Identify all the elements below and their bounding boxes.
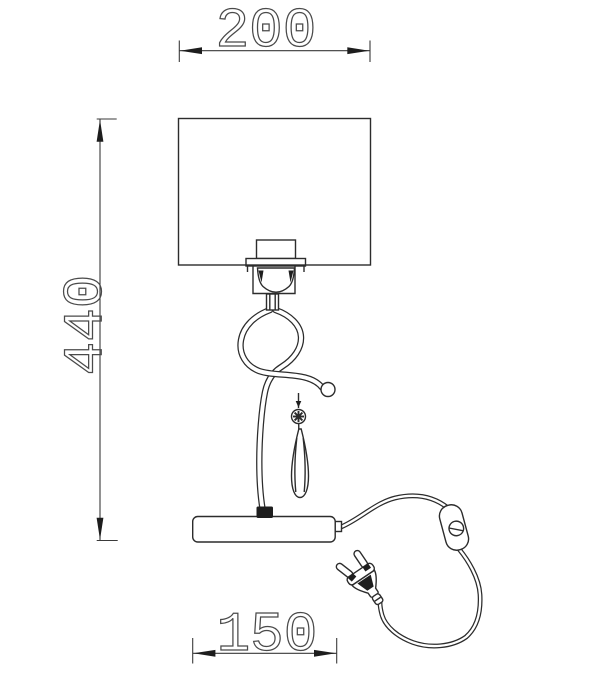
cord-segment-outer	[341, 496, 448, 527]
stem-neck	[267, 294, 279, 310]
scroll-stem	[241, 294, 335, 509]
dimension-label-top: 200	[216, 0, 317, 63]
cord-outlet-nub	[335, 522, 342, 532]
dimension-bottom: 150	[193, 603, 337, 667]
arrowhead-up-icon	[97, 120, 104, 142]
stem-collar	[257, 507, 274, 519]
power-plug	[334, 547, 393, 613]
dimension-label-left: 440	[54, 275, 118, 376]
base-outline	[193, 517, 336, 543]
arrowhead-left-icon	[193, 650, 215, 657]
pendant-ornament	[292, 393, 309, 498]
technical-drawing-canvas: 200 440 150	[0, 0, 608, 686]
arrowhead-down-icon	[97, 518, 104, 540]
socket-cap	[257, 240, 296, 259]
inline-switch	[437, 502, 471, 552]
cord-segment-inner	[380, 549, 480, 646]
arrowhead-right-icon	[347, 47, 369, 54]
dimension-label-bottom: 150	[217, 603, 318, 667]
crystal-teardrop	[292, 429, 309, 498]
arrowhead-left-icon	[180, 47, 202, 54]
socket-holder	[248, 266, 305, 294]
dimension-left: 440	[54, 119, 118, 541]
lamp-technical-drawing: 200 440 150	[0, 0, 608, 686]
pendant-link	[296, 401, 302, 408]
flower-spokes-icon	[293, 411, 304, 422]
lamp-base	[193, 507, 342, 543]
dimension-top: 200	[179, 0, 370, 63]
lamp-socket	[246, 240, 306, 266]
ball-finial	[321, 383, 335, 397]
